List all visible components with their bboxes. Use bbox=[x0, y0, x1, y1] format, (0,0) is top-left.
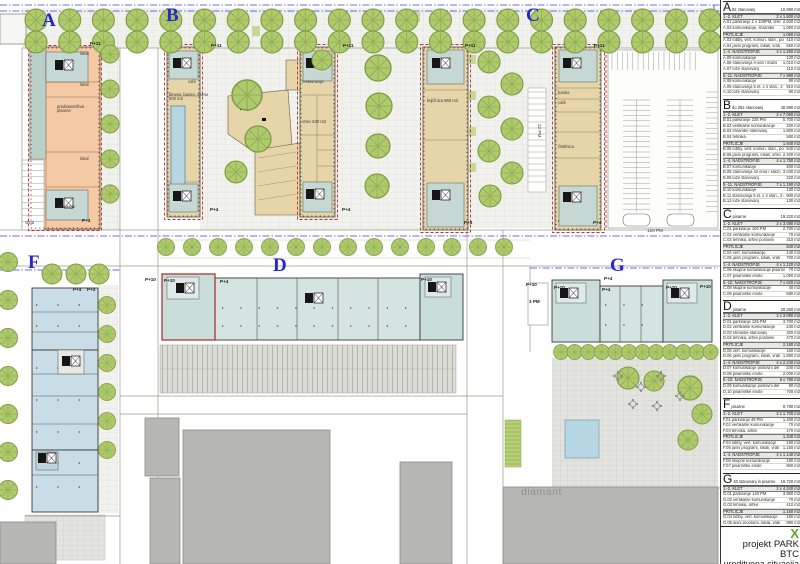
legend-section-A: A82 stanovanj10.990 m21.-2. KLET2 x 1.60… bbox=[723, 1, 800, 96]
elevator-core-icon bbox=[432, 190, 450, 200]
tree-icon bbox=[0, 291, 17, 310]
tree-icon bbox=[497, 31, 519, 53]
elevator-core-icon bbox=[432, 58, 450, 68]
tree-icon bbox=[66, 264, 86, 284]
tree-icon bbox=[0, 329, 17, 348]
tree-icon bbox=[245, 126, 271, 152]
elevator-core-icon bbox=[428, 282, 446, 292]
tree-icon bbox=[312, 50, 332, 70]
legend-section-D: Dpisarne20.260 m21.-2. KLET2 x 3.090 m2D… bbox=[723, 300, 800, 395]
elevator-core-icon bbox=[173, 58, 191, 68]
tree-icon bbox=[444, 239, 461, 256]
tree-icon bbox=[158, 239, 175, 256]
tree-icon bbox=[365, 55, 391, 81]
elevator-core-icon bbox=[305, 293, 323, 303]
building-diamant bbox=[503, 487, 718, 564]
elevator-core-icon bbox=[560, 288, 578, 298]
tree-icon bbox=[328, 9, 350, 31]
elevator-core-icon bbox=[306, 189, 324, 199]
tree-icon bbox=[42, 264, 62, 284]
tree-icon bbox=[99, 384, 116, 401]
legend-row: C.09 pisarniške enote580 m2 bbox=[723, 292, 800, 298]
tree-icon bbox=[227, 31, 249, 53]
tree-icon bbox=[99, 413, 116, 430]
tree-icon bbox=[126, 31, 148, 53]
tree-icon bbox=[501, 118, 523, 140]
legend-row: B.12 lože stanovanj130 m2 bbox=[723, 199, 800, 205]
legend-section-header: A82 stanovanj10.990 m2 bbox=[723, 2, 800, 14]
tree-icon bbox=[632, 9, 654, 31]
water-feature bbox=[565, 420, 599, 458]
tree-icon bbox=[101, 185, 119, 203]
tree-icon bbox=[0, 367, 17, 386]
elevator-core-icon bbox=[62, 356, 80, 366]
tree-icon bbox=[314, 239, 331, 256]
tree-icon bbox=[194, 9, 216, 31]
elevator-core-icon bbox=[563, 58, 581, 68]
legend-section-B: Bdo 252 stanovanj40.990 m21.-2. KLET2 x … bbox=[723, 99, 800, 205]
tree-icon bbox=[678, 376, 702, 400]
tree-icon bbox=[210, 239, 227, 256]
tree-icon bbox=[89, 264, 109, 284]
tree-icon bbox=[340, 239, 357, 256]
tree-icon bbox=[288, 239, 305, 256]
legend-row: D.10 pisarniške enote700 m2 bbox=[723, 390, 800, 396]
tree-icon bbox=[225, 161, 247, 183]
tree-icon bbox=[59, 31, 81, 53]
tree-icon bbox=[622, 345, 637, 360]
building-block-d bbox=[162, 274, 463, 340]
tree-icon bbox=[227, 9, 249, 31]
tree-icon bbox=[396, 31, 418, 53]
tree-icon bbox=[598, 31, 620, 53]
tree-icon bbox=[99, 326, 116, 343]
tree-icon bbox=[99, 297, 116, 314]
tree-icon bbox=[598, 9, 620, 31]
tree-icon bbox=[632, 31, 654, 53]
tree-icon bbox=[0, 253, 17, 272]
tree-icon bbox=[160, 9, 182, 31]
tree-icon bbox=[429, 31, 451, 53]
tree-icon bbox=[665, 9, 687, 31]
legend-section-F: Fpisarne9.780 m21.-2. KLET2 x 1.700 m2F.… bbox=[723, 398, 800, 470]
tree-icon bbox=[554, 345, 569, 360]
tree-icon bbox=[690, 345, 705, 360]
tree-icon bbox=[194, 31, 216, 53]
tree-icon bbox=[497, 9, 519, 31]
parking-hatch bbox=[160, 345, 456, 393]
tree-icon bbox=[496, 239, 513, 256]
tree-icon bbox=[0, 481, 17, 500]
project-subtitle: ureditvena situacija bbox=[723, 560, 799, 564]
tree-icon bbox=[396, 9, 418, 31]
tree-icon bbox=[676, 345, 691, 360]
tree-icon bbox=[594, 345, 609, 360]
legend-sections: A82 stanovanj10.990 m21.-2. KLET2 x 1.60… bbox=[721, 0, 800, 524]
tree-icon bbox=[362, 9, 384, 31]
legend-section-header: Fpisarne9.780 m2 bbox=[723, 399, 800, 411]
tree-icon bbox=[236, 239, 253, 256]
legend-section-header: Cpisarne19.220 m2 bbox=[723, 209, 800, 221]
legend-section-G: G40 stanovanj in pisarne19.720 m21.-2. K… bbox=[723, 473, 800, 524]
tree-icon bbox=[101, 150, 119, 168]
tree-icon bbox=[101, 80, 119, 98]
legend-section-C: Cpisarne19.220 m21.-2. KLET2 x 3.080 m2C… bbox=[723, 208, 800, 297]
tree-icon bbox=[365, 174, 389, 198]
elevator-core-icon bbox=[563, 192, 581, 202]
tree-icon bbox=[362, 31, 384, 53]
tree-icon bbox=[328, 31, 350, 53]
legend-row: F.07 pisarniške enote960 m2 bbox=[723, 464, 800, 470]
legend-panel: A82 stanovanj10.990 m21.-2. KLET2 x 1.60… bbox=[720, 0, 800, 564]
tree-icon bbox=[478, 140, 500, 162]
tree-icon bbox=[184, 239, 201, 256]
legend-section-header: G40 stanovanj in pisarne19.720 m2 bbox=[723, 474, 800, 486]
tree-icon bbox=[232, 80, 262, 110]
title-block: X projekt PARK BTC ureditvena situacija bbox=[721, 526, 800, 564]
tree-icon bbox=[392, 239, 409, 256]
tree-icon bbox=[429, 9, 451, 31]
tree-icon bbox=[564, 31, 586, 53]
tree-icon bbox=[366, 93, 392, 119]
tree-icon bbox=[59, 9, 81, 31]
legend-section-header: Dpisarne20.260 m2 bbox=[723, 301, 800, 313]
tree-icon bbox=[501, 162, 523, 184]
tree-icon bbox=[366, 239, 383, 256]
elevator-core-icon bbox=[671, 288, 689, 298]
tree-icon bbox=[501, 73, 523, 95]
tree-icon bbox=[699, 31, 720, 53]
tree-icon bbox=[25, 31, 47, 53]
elevator-core-icon bbox=[38, 453, 56, 463]
tree-icon bbox=[0, 443, 17, 462]
elevator-core-icon bbox=[55, 60, 73, 70]
tree-icon bbox=[463, 9, 485, 31]
tree-icon bbox=[581, 345, 596, 360]
tree-icon bbox=[703, 345, 718, 360]
tree-icon bbox=[418, 239, 435, 256]
tree-icon bbox=[478, 96, 500, 118]
tree-icon bbox=[92, 9, 114, 31]
tree-icon bbox=[262, 239, 279, 256]
tree-icon bbox=[635, 345, 650, 360]
tree-icon bbox=[478, 51, 500, 73]
building-block-f bbox=[32, 288, 98, 512]
tree-icon bbox=[366, 134, 390, 158]
tree-icon bbox=[692, 404, 712, 424]
legend-section-header: Bdo 252 stanovanj40.990 m2 bbox=[723, 100, 800, 112]
parking-lot-120pm bbox=[606, 50, 718, 228]
elevator-core-icon bbox=[176, 283, 194, 293]
tree-icon bbox=[479, 185, 501, 207]
elevator-core-icon bbox=[173, 191, 191, 201]
tree-icon bbox=[531, 31, 553, 53]
legend-row: A.10 lože stanovanj90 m2 bbox=[723, 90, 800, 96]
tree-icon bbox=[99, 355, 116, 372]
elevator-core-icon bbox=[55, 198, 73, 208]
tree-icon bbox=[608, 345, 623, 360]
tree-icon bbox=[678, 430, 698, 450]
tree-icon bbox=[295, 31, 317, 53]
legend-row: G.05 javni programi, lokali, vrati980 m2 bbox=[723, 521, 800, 524]
tree-icon bbox=[463, 31, 485, 53]
tree-icon bbox=[25, 9, 47, 31]
tree-icon bbox=[662, 345, 677, 360]
site-plan-page: ABCDFGP+11P+11P+11P+11P+11P+4P+4P+4P+4P+… bbox=[0, 0, 800, 564]
swimming-pool bbox=[171, 106, 185, 190]
plan-drawing bbox=[0, 0, 720, 564]
tree-icon bbox=[0, 405, 17, 424]
tree-icon bbox=[564, 9, 586, 31]
tree-icon bbox=[295, 9, 317, 31]
project-title: projekt PARK BTC bbox=[723, 540, 799, 560]
tree-icon bbox=[101, 45, 119, 63]
tree-icon bbox=[160, 31, 182, 53]
tree-icon bbox=[567, 345, 582, 360]
tree-icon bbox=[531, 9, 553, 31]
plan-canvas: ABCDFGP+11P+11P+11P+11P+11P+4P+4P+4P+4P+… bbox=[0, 0, 720, 564]
tree-icon bbox=[665, 31, 687, 53]
tree-icon bbox=[126, 9, 148, 31]
tree-icon bbox=[99, 442, 116, 459]
tree-icon bbox=[470, 239, 487, 256]
tree-icon bbox=[261, 31, 283, 53]
tree-icon bbox=[649, 345, 664, 360]
tree-icon bbox=[261, 9, 283, 31]
tree-icon bbox=[101, 115, 119, 133]
tree-icon bbox=[699, 9, 720, 31]
